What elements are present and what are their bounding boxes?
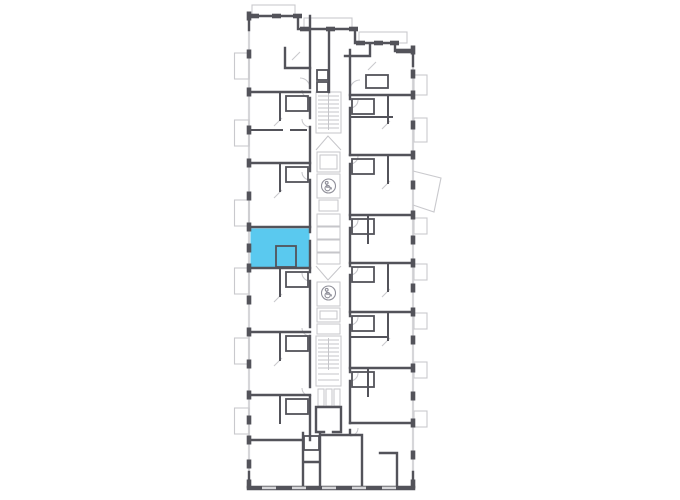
door-arc (300, 78, 310, 88)
stairwell-lower (316, 336, 341, 386)
wheelchair-icon (322, 179, 336, 193)
right-balcony (414, 313, 427, 329)
top-facade (249, 16, 413, 66)
entrance-corridor (303, 433, 397, 488)
elevator-bank-upper (317, 152, 340, 211)
vestibule (316, 407, 341, 432)
building-floor-plan (0, 0, 680, 500)
right-balcony (414, 264, 427, 280)
right-balcony (414, 118, 427, 142)
stairwell-upper (316, 92, 341, 133)
hall-floor-tiles (317, 214, 340, 264)
angled-balcony (413, 171, 441, 212)
right-balcony (414, 218, 427, 234)
left-balcony (235, 200, 250, 226)
central-core (316, 92, 341, 406)
right-unit-walls (350, 95, 413, 423)
right-balcony (414, 411, 427, 427)
lobby-splay-wall (316, 136, 341, 150)
highlighted-apartment[interactable] (251, 229, 310, 268)
right-balcony (414, 75, 427, 95)
floor-plan-viewport (0, 0, 680, 500)
wheelchair-icon (322, 286, 336, 300)
service-shafts (318, 389, 340, 406)
door-arc (350, 80, 360, 90)
lobby-splay-wall (316, 266, 341, 280)
right-balcony (414, 362, 427, 378)
